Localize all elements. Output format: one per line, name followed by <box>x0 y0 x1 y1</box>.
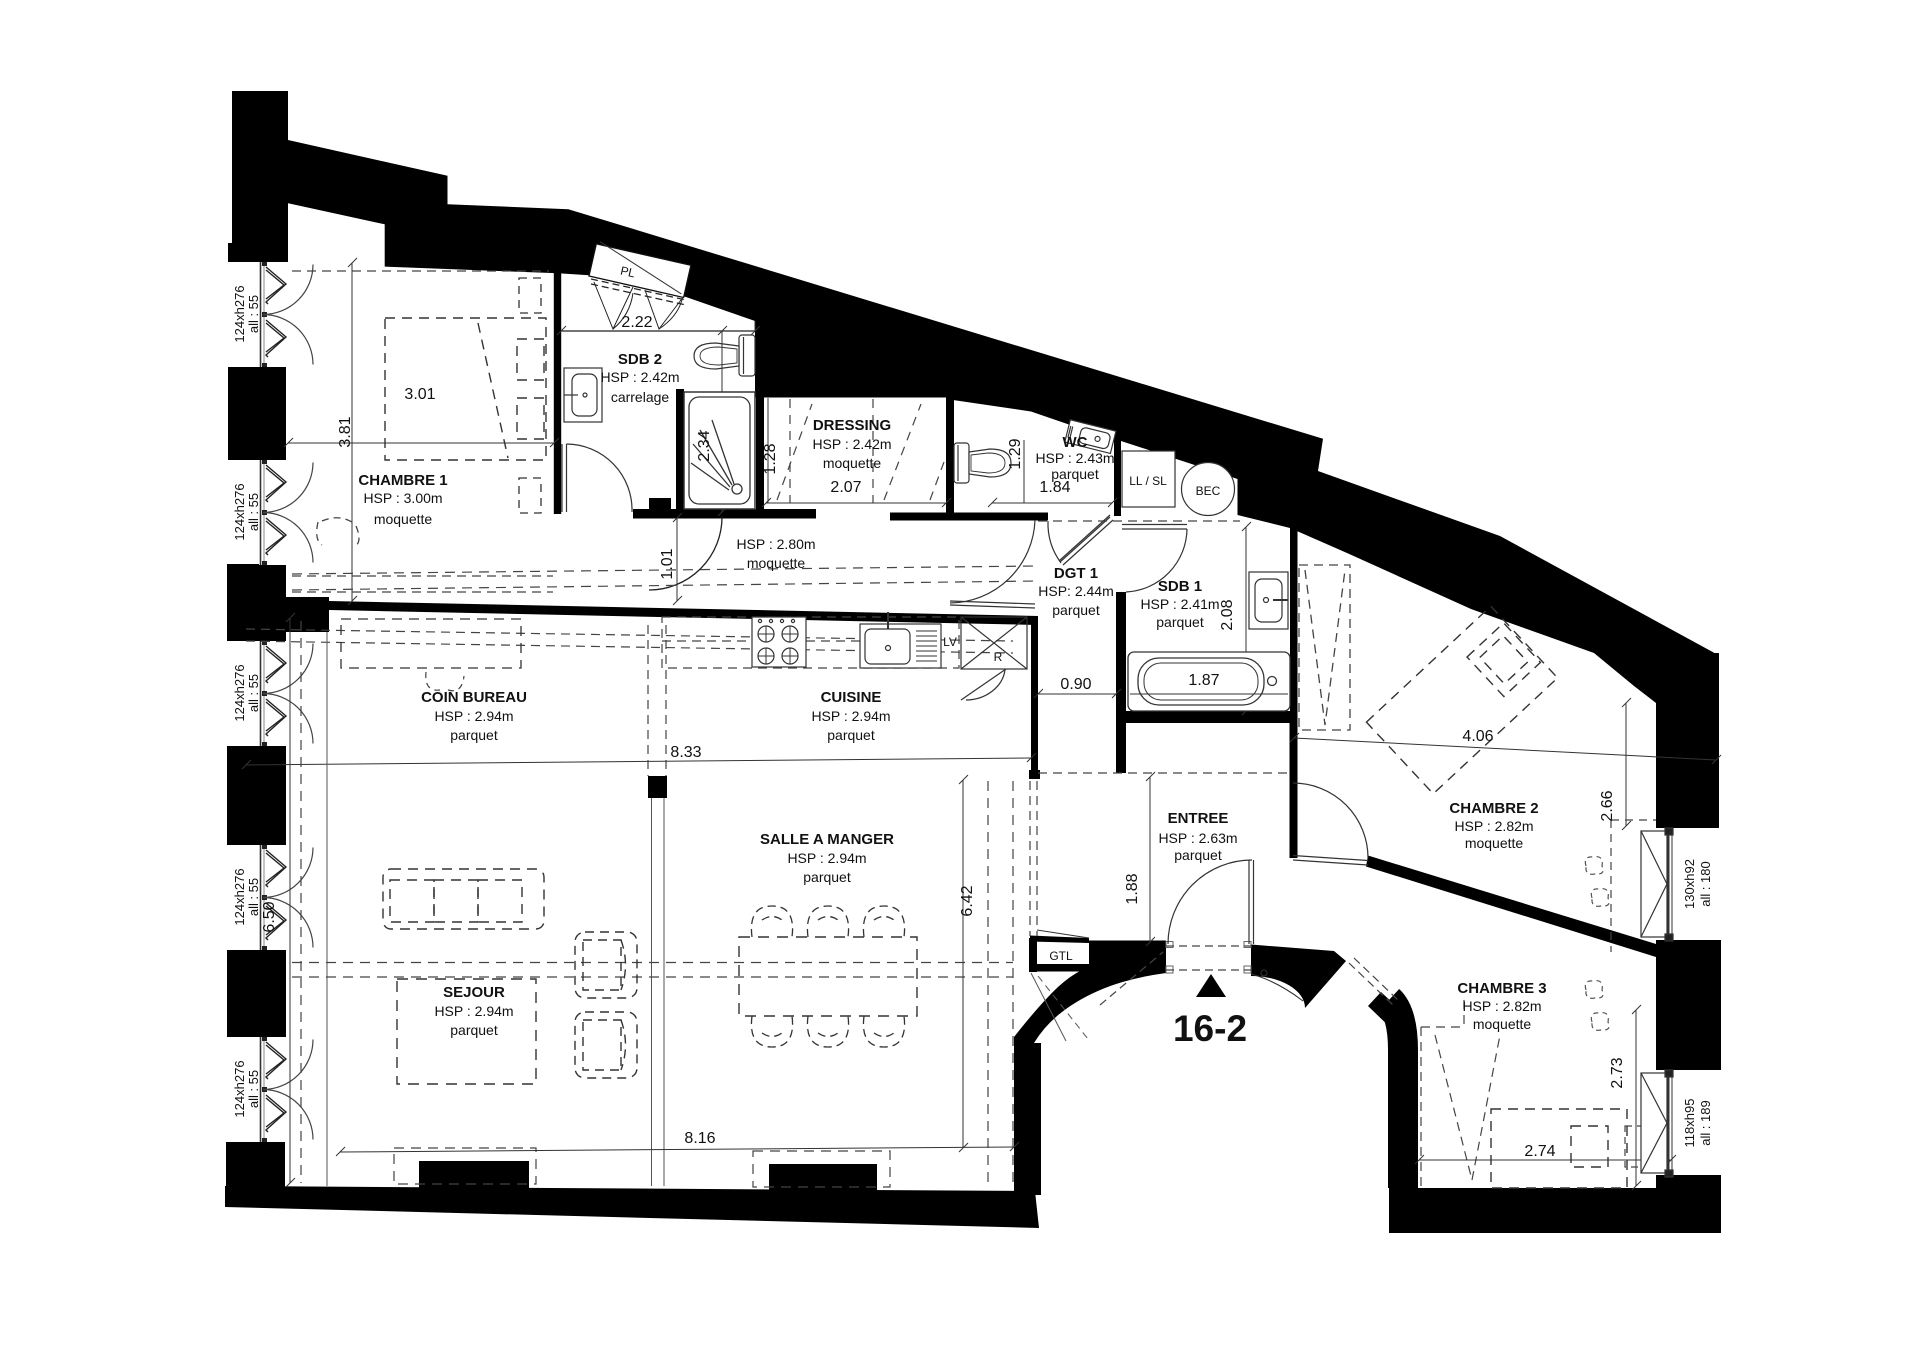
svg-text:HSP : 2.63m: HSP : 2.63m <box>1158 830 1237 846</box>
svg-text:130xh92: 130xh92 <box>1682 859 1697 909</box>
svg-text:2.08: 2.08 <box>1219 599 1236 630</box>
svg-text:R: R <box>994 650 1003 664</box>
svg-text:all : 55: all : 55 <box>246 1070 261 1108</box>
svg-text:parquet: parquet <box>1052 602 1100 618</box>
svg-text:4.06: 4.06 <box>1462 728 1493 745</box>
svg-text:2.74: 2.74 <box>1524 1143 1555 1160</box>
svg-text:HSP : 2.94m: HSP : 2.94m <box>434 1003 513 1019</box>
svg-text:2.66: 2.66 <box>1599 790 1616 821</box>
svg-text:BEC: BEC <box>1196 484 1221 498</box>
svg-text:HSP : 2.82m: HSP : 2.82m <box>1454 818 1533 834</box>
svg-text:1.84: 1.84 <box>1039 479 1070 496</box>
svg-text:SALLE A MANGER: SALLE A MANGER <box>760 831 894 848</box>
svg-text:DGT 1: DGT 1 <box>1054 565 1098 582</box>
svg-text:CHAMBRE 2: CHAMBRE 2 <box>1449 800 1538 817</box>
svg-text:2.34: 2.34 <box>696 430 713 461</box>
svg-text:124xh276: 124xh276 <box>232 664 247 721</box>
svg-text:parquet: parquet <box>450 727 498 743</box>
svg-text:all : 180: all : 180 <box>1698 861 1713 907</box>
svg-text:0.90: 0.90 <box>1060 676 1091 693</box>
svg-text:GTL: GTL <box>1049 949 1073 963</box>
svg-text:carrelage: carrelage <box>611 389 670 405</box>
svg-text:HSP : 2.41m: HSP : 2.41m <box>1140 596 1219 612</box>
svg-text:all : 55: all : 55 <box>246 493 261 531</box>
svg-text:SEJOUR: SEJOUR <box>443 984 505 1001</box>
svg-text:parquet: parquet <box>827 727 875 743</box>
svg-text:LV: LV <box>943 635 957 649</box>
svg-text:1.88: 1.88 <box>1124 873 1141 904</box>
svg-text:8.33: 8.33 <box>670 744 701 761</box>
svg-text:SDB 2: SDB 2 <box>618 351 662 368</box>
svg-text:2.22: 2.22 <box>621 314 652 331</box>
svg-text:1.28: 1.28 <box>762 443 779 474</box>
svg-text:parquet: parquet <box>450 1022 498 1038</box>
svg-text:16-2: 16-2 <box>1173 1008 1247 1049</box>
svg-text:6.42: 6.42 <box>959 885 976 916</box>
svg-text:118xh95: 118xh95 <box>1682 1099 1697 1148</box>
svg-text:HSP : 2.94m: HSP : 2.94m <box>434 708 513 724</box>
svg-text:HSP : 2.80m: HSP : 2.80m <box>736 536 815 552</box>
svg-text:124xh276: 124xh276 <box>232 868 247 925</box>
svg-text:124xh276: 124xh276 <box>232 483 247 540</box>
svg-text:124xh276: 124xh276 <box>232 1060 247 1117</box>
svg-text:all : 55: all : 55 <box>246 878 261 916</box>
svg-text:CHAMBRE 1: CHAMBRE 1 <box>358 472 447 489</box>
svg-text:WC: WC <box>1063 434 1088 451</box>
svg-text:moquette: moquette <box>1465 835 1524 851</box>
svg-text:HSP : 2.94m: HSP : 2.94m <box>787 850 866 866</box>
svg-text:HSP: 2.44m: HSP: 2.44m <box>1038 583 1113 599</box>
svg-text:parquet: parquet <box>803 869 851 885</box>
svg-text:3.01: 3.01 <box>404 386 435 403</box>
svg-text:3.81: 3.81 <box>337 416 354 447</box>
svg-text:2.07: 2.07 <box>830 479 861 496</box>
svg-text:parquet: parquet <box>1174 847 1222 863</box>
svg-text:all : 189: all : 189 <box>1698 1100 1713 1146</box>
svg-text:moquette: moquette <box>374 511 433 527</box>
svg-text:moquette: moquette <box>1473 1016 1532 1032</box>
svg-text:HSP : 2.42m: HSP : 2.42m <box>812 436 891 452</box>
svg-text:8.16: 8.16 <box>684 1130 715 1147</box>
svg-text:HSP : 2.43m: HSP : 2.43m <box>1035 450 1114 466</box>
svg-text:DRESSING: DRESSING <box>813 417 891 434</box>
svg-text:HSP : 2.82m: HSP : 2.82m <box>1462 998 1541 1014</box>
svg-text:2.73: 2.73 <box>1609 1057 1626 1088</box>
svg-text:all : 55: all : 55 <box>246 674 261 712</box>
svg-text:moquette: moquette <box>747 555 806 571</box>
svg-text:124xh276: 124xh276 <box>232 285 247 342</box>
svg-text:CHAMBRE 3: CHAMBRE 3 <box>1457 980 1546 997</box>
svg-text:moquette: moquette <box>823 455 882 471</box>
svg-text:COIN BUREAU: COIN BUREAU <box>421 689 527 706</box>
svg-text:CUISINE: CUISINE <box>821 689 882 706</box>
svg-text:HSP : 2.42m: HSP : 2.42m <box>600 369 679 385</box>
svg-text:1.01: 1.01 <box>659 548 676 579</box>
svg-text:LL / SL: LL / SL <box>1129 474 1167 488</box>
svg-text:SDB 1: SDB 1 <box>1158 578 1202 595</box>
svg-text:1.87: 1.87 <box>1188 672 1219 689</box>
svg-text:parquet: parquet <box>1156 614 1204 630</box>
svg-text:HSP : 3.00m: HSP : 3.00m <box>363 490 442 506</box>
svg-text:all : 55: all : 55 <box>246 295 261 333</box>
svg-text:6.50: 6.50 <box>261 901 278 932</box>
svg-text:HSP : 2.94m: HSP : 2.94m <box>811 708 890 724</box>
svg-text:ENTREE: ENTREE <box>1168 810 1229 827</box>
svg-text:1.29: 1.29 <box>1007 438 1024 469</box>
